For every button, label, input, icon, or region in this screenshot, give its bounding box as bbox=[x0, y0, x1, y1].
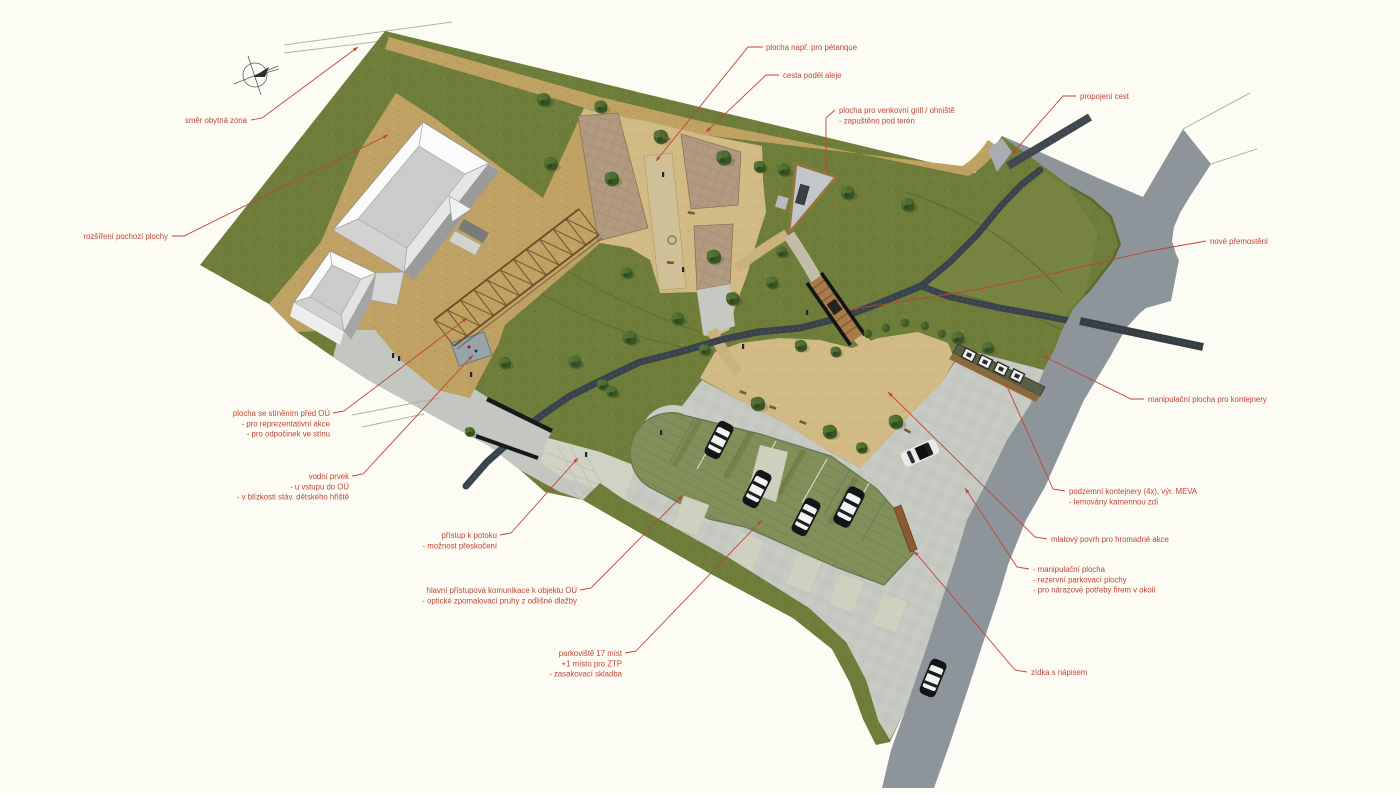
svg-text:manipulační plocha pro kontejn: manipulační plocha pro kontejnery bbox=[1148, 395, 1267, 404]
svg-text:- optické zpomalovací pruhy z: - optické zpomalovací pruhy z odlišné dl… bbox=[422, 596, 577, 605]
svg-text:zídka s nápisem: zídka s nápisem bbox=[1031, 668, 1087, 677]
svg-text:propojení cest: propojení cest bbox=[1080, 92, 1130, 101]
svg-text:vodní prvek: vodní prvek bbox=[309, 472, 349, 481]
svg-text:- v blízkosti stáv. dětského h: - v blízkosti stáv. dětského hřiště bbox=[237, 493, 349, 502]
svg-text:plocha se stíněním před OÚ: plocha se stíněním před OÚ bbox=[233, 409, 330, 418]
svg-text:+1 místo pro ZTP: +1 místo pro ZTP bbox=[562, 659, 622, 668]
svg-text:- rezervní parkovací plochy: - rezervní parkovací plochy bbox=[1033, 575, 1127, 584]
svg-text:- pro reprezentativní akce: - pro reprezentativní akce bbox=[242, 419, 330, 428]
svg-text:plocha např. pro pétanque: plocha např. pro pétanque bbox=[766, 43, 857, 52]
svg-text:- pro odpočinek ve stínu: - pro odpočinek ve stínu bbox=[247, 430, 330, 439]
svg-text:parkoviště 17 míst: parkoviště 17 míst bbox=[559, 649, 623, 658]
svg-text:mlatový povrh pro hromadné akc: mlatový povrh pro hromadné akce bbox=[1051, 535, 1169, 544]
svg-text:- lemovány kamennou zdí: - lemovány kamennou zdí bbox=[1069, 497, 1159, 506]
svg-text:nové přemostění: nové přemostění bbox=[1210, 237, 1269, 246]
svg-text:- zasakovací skladba: - zasakovací skladba bbox=[549, 670, 622, 679]
svg-text:rozšíření pochozí plochy: rozšíření pochozí plochy bbox=[83, 232, 168, 241]
svg-text:- zapuštěno pod terén: - zapuštěno pod terén bbox=[839, 116, 915, 125]
svg-text:cesta podél aleje: cesta podél aleje bbox=[783, 71, 842, 80]
svg-text:- pro nárazové potřeby firem v: - pro nárazové potřeby firem v okolí bbox=[1033, 586, 1156, 595]
svg-text:- u vstupu do OÚ: - u vstupu do OÚ bbox=[290, 482, 349, 491]
svg-text:přístup k potoku: přístup k potoku bbox=[442, 531, 497, 540]
svg-text:plocha pro venkovní grill / oh: plocha pro venkovní grill / ohniště bbox=[839, 106, 955, 115]
svg-text:- manipulační plocha: - manipulační plocha bbox=[1033, 565, 1106, 574]
svg-text:- možnost přeskočení: - možnost přeskočení bbox=[422, 541, 497, 550]
svg-text:hlavní přístupová komunikace k: hlavní přístupová komunikace k objektu O… bbox=[427, 586, 578, 595]
svg-text:podzemní kontejnery (4x), výr.: podzemní kontejnery (4x), výr. MEVA bbox=[1069, 487, 1198, 496]
svg-text:směr obytná zóna: směr obytná zóna bbox=[185, 116, 248, 125]
